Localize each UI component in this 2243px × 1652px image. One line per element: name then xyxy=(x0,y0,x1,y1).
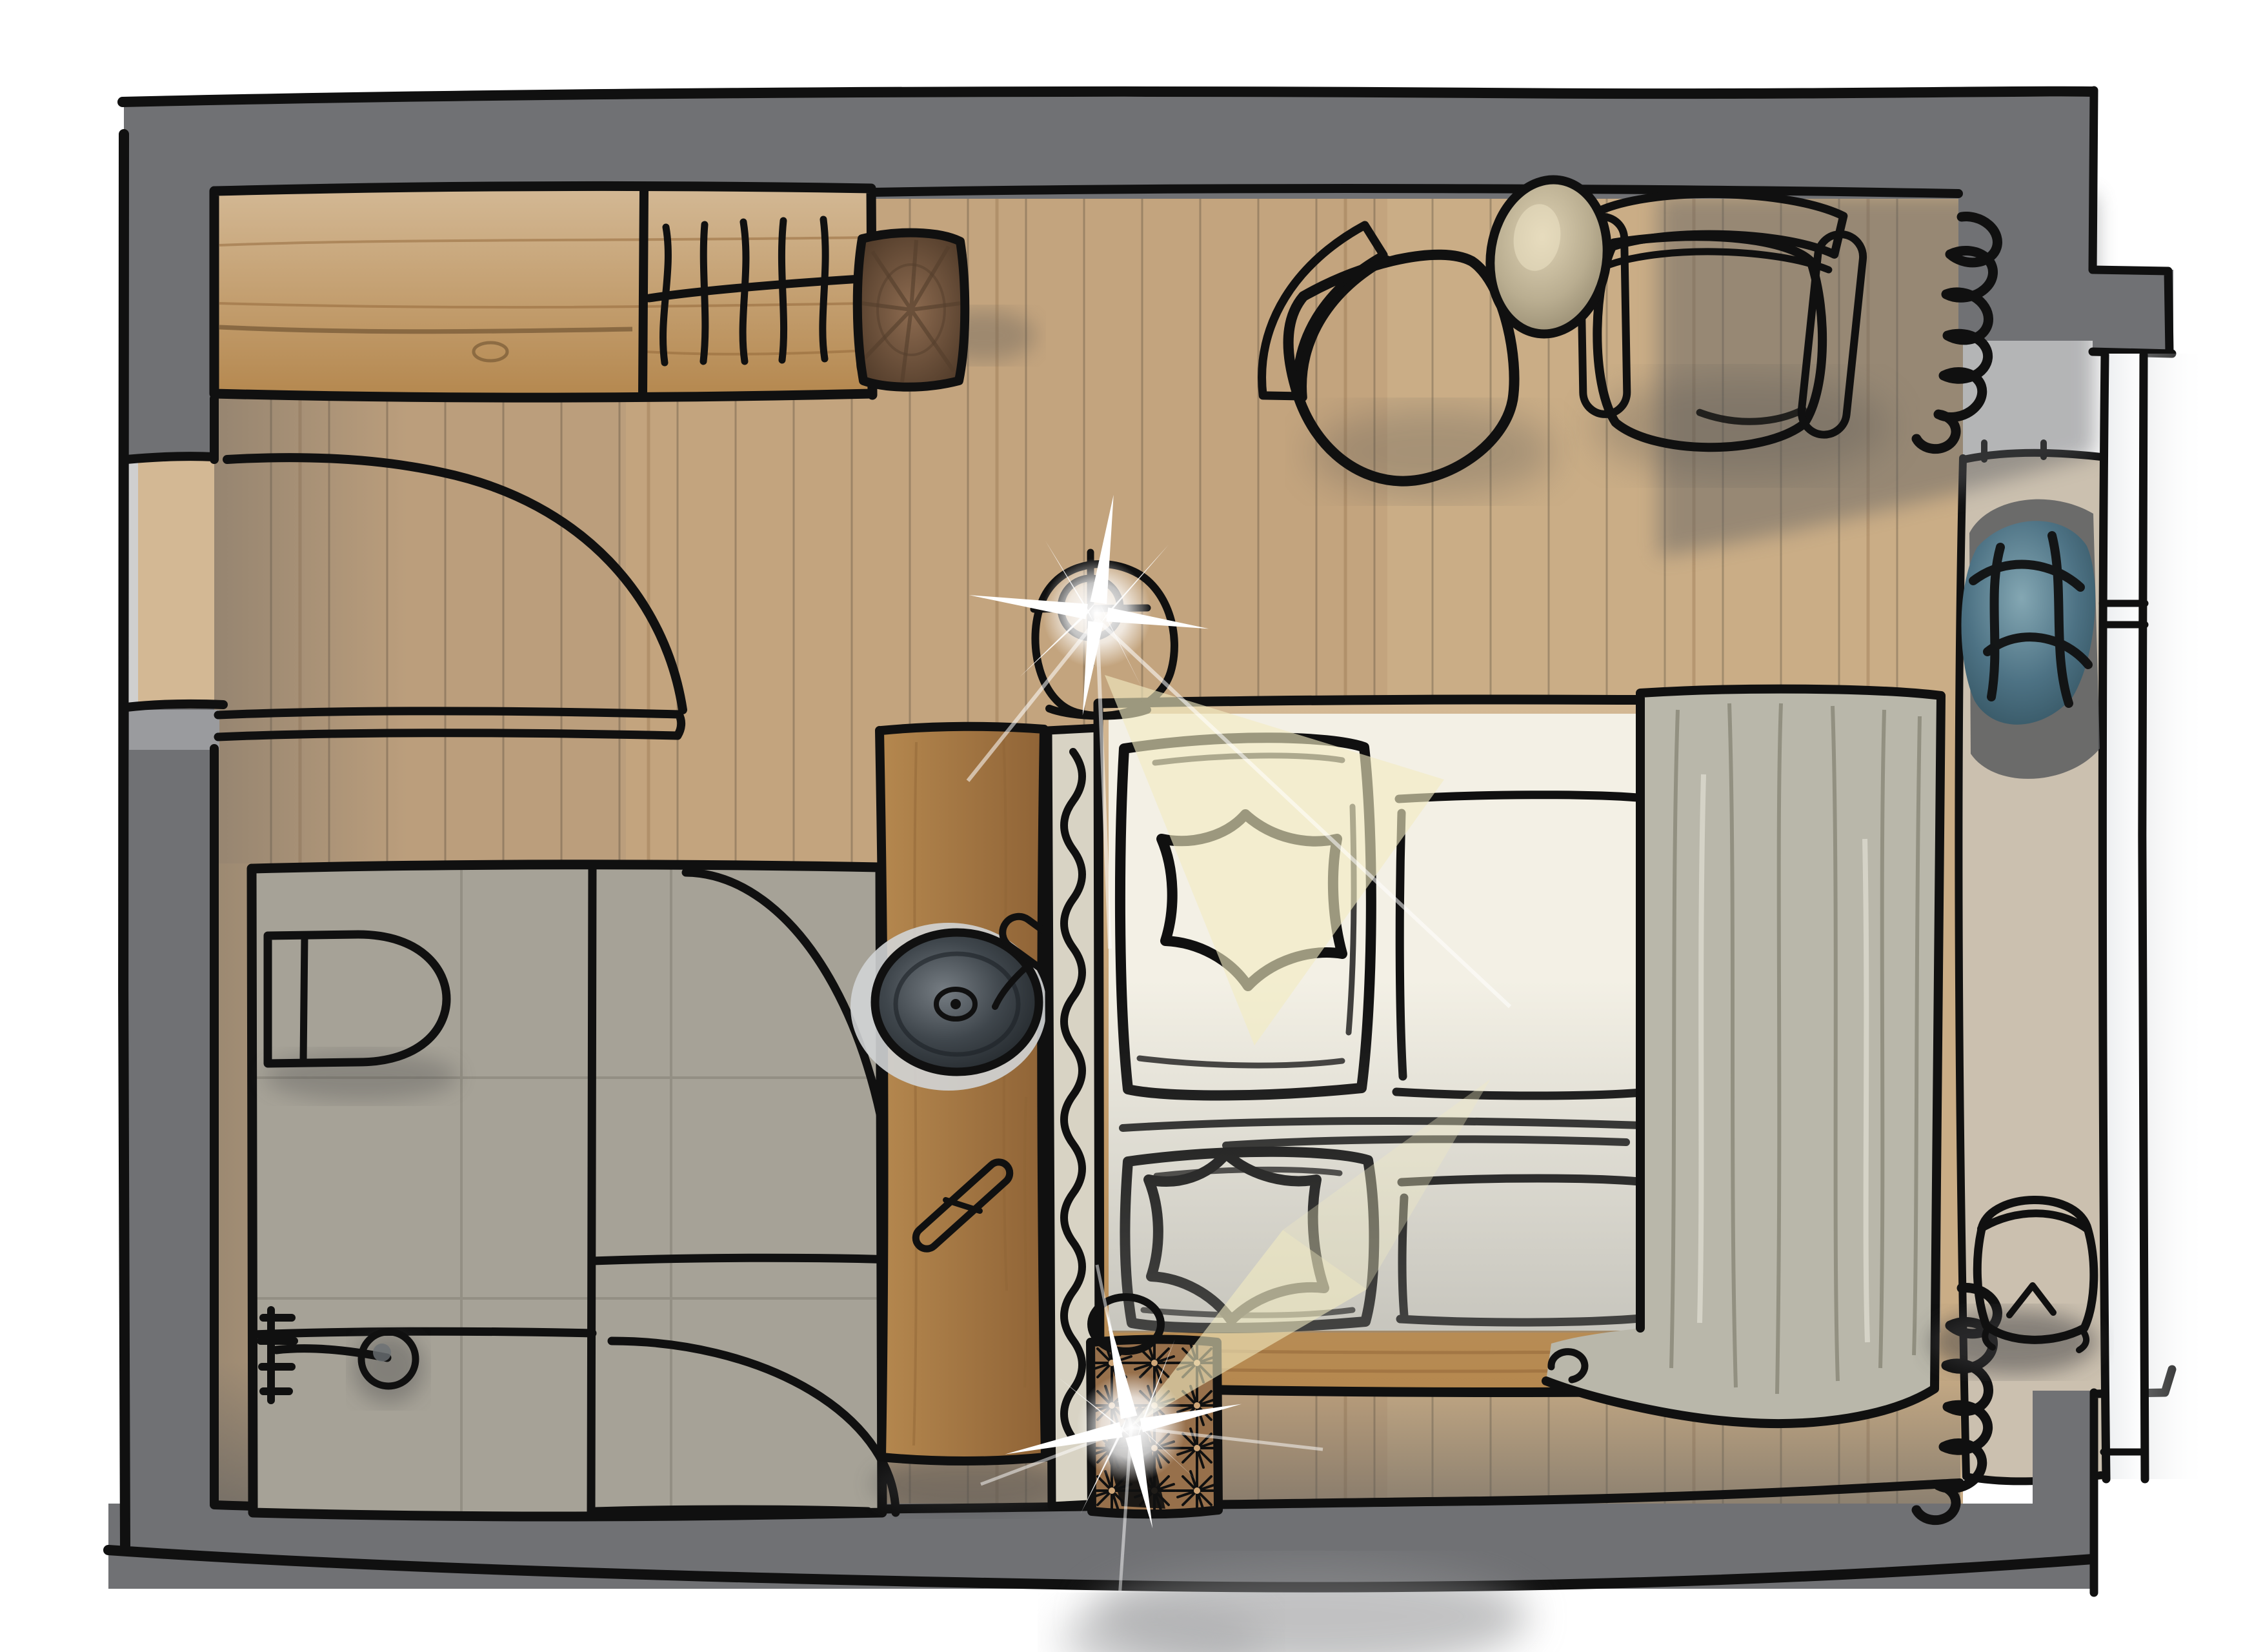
wall-bottom-right-step xyxy=(2033,1391,2094,1507)
bathroom xyxy=(252,865,896,1516)
door-threshold-floor xyxy=(138,459,214,709)
shower-head-highlight xyxy=(373,1344,391,1362)
sliding-window xyxy=(2102,354,2208,1479)
wardrobe-body xyxy=(214,188,872,396)
wall-left-upper xyxy=(124,103,214,461)
sink-drain-hole xyxy=(951,999,961,1009)
floor-plan-page xyxy=(0,0,2243,1652)
balcony-chair-shadow xyxy=(1929,1310,2097,1375)
armchair-left-shadow xyxy=(1310,407,1555,497)
wardrobe-divider xyxy=(643,191,644,394)
door-jamb-block xyxy=(129,710,219,750)
outside-glow xyxy=(2144,354,2208,1479)
window-glass xyxy=(2105,354,2144,1479)
bathroom-tile-floor xyxy=(252,866,882,1515)
shower-partition xyxy=(591,867,592,1514)
wall-pillar xyxy=(2093,270,2173,354)
wall-left-lower xyxy=(124,709,214,1586)
vanity-counter xyxy=(880,728,1045,1460)
vanity xyxy=(850,727,1077,1513)
toilet-seat-line xyxy=(303,937,305,1061)
floor-plan-sketch xyxy=(0,0,2243,1652)
